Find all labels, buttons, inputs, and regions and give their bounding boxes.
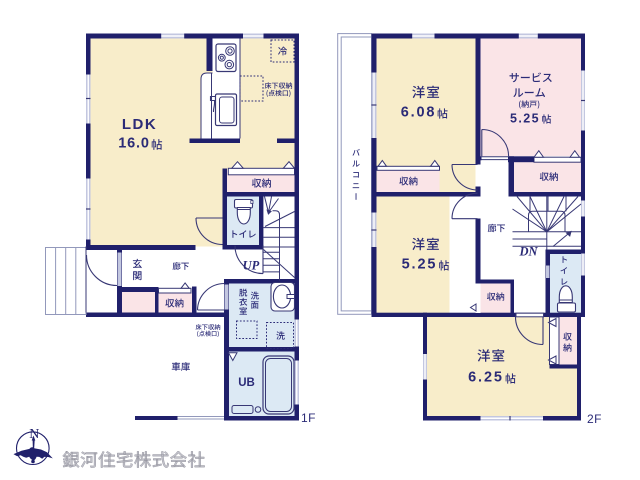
svg-text:6.25: 6.25 [468,370,504,386]
svg-text:5.25: 5.25 [402,257,438,273]
svg-text:16.0: 16.0 [118,136,149,152]
svg-text:DN: DN [518,245,538,259]
svg-text:6.08: 6.08 [401,105,436,121]
svg-text:2F: 2F [587,412,602,426]
svg-text:UP: UP [243,259,260,273]
svg-text:5.25: 5.25 [510,111,540,125]
svg-text:UB: UB [238,377,255,389]
svg-text:N: N [29,427,39,442]
svg-text:1F: 1F [301,411,316,425]
svg-text:LDK: LDK [122,116,157,133]
